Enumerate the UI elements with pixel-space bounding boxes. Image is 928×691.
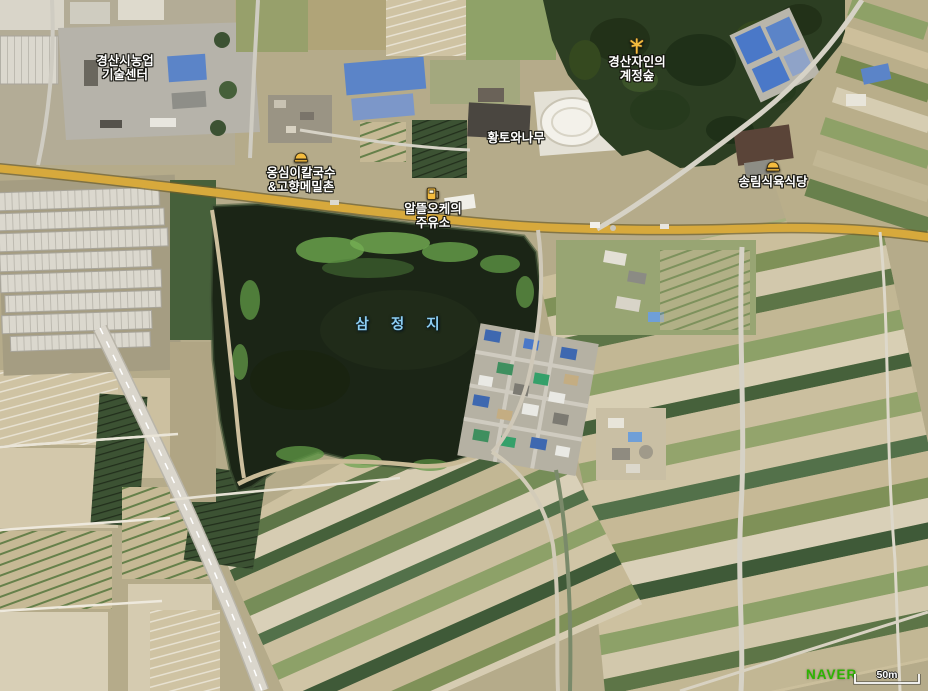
construction-yard: [596, 408, 666, 480]
poi-text: 계정숲: [620, 69, 655, 83]
greenhouse-area: [0, 175, 182, 376]
field-dark-green: [170, 180, 216, 340]
scale-bar-label: 50m: [852, 669, 922, 681]
poi-label-hwangto-namu[interactable]: 황토와나무: [487, 131, 545, 145]
scale-bar: 50m: [852, 668, 922, 688]
satellite-imagery: [0, 0, 928, 691]
poi-label-agri-center[interactable]: 경산시농업 기술센터: [96, 54, 154, 83]
poi-text: 경산자인의: [608, 55, 666, 69]
poi-text: 주유소: [416, 216, 451, 230]
restaurant-icon: [765, 161, 780, 174]
poi-text: 옹심이칼국수: [266, 166, 335, 180]
poi-label-kalguksu[interactable]: 옹심이칼국수 &고향메밀촌: [266, 152, 335, 195]
poi-text: 알뜰오케의: [404, 202, 462, 216]
naver-logo: NAVER: [806, 667, 857, 682]
poi-text: 경산시농업: [96, 54, 154, 68]
water-label: 삼 정 지: [355, 313, 448, 334]
poi-text: &고향메밀촌: [268, 180, 335, 194]
map-canvas[interactable]: 경산시농업 기술센터 옹심이칼국수 &고향메밀촌 알뜰오케의 주유소 황토와나무…: [0, 0, 928, 691]
poi-text: 황토와나무: [487, 131, 545, 145]
poi-text: 기술센터: [102, 68, 148, 82]
poi-label-gyejeong-forest[interactable]: 경산자인의 계정숲: [608, 38, 666, 84]
poi-text: 송림식육식당: [738, 175, 807, 189]
poi-label-gas-station[interactable]: 알뜰오케의 주유소: [404, 186, 462, 231]
tree-icon: [628, 38, 645, 54]
village: [457, 323, 598, 476]
fuel-icon: [426, 186, 440, 201]
poi-label-songnim[interactable]: 송림식육식당: [738, 161, 807, 189]
fields-east-of-pond: [556, 240, 756, 335]
restaurant-icon: [293, 152, 308, 165]
